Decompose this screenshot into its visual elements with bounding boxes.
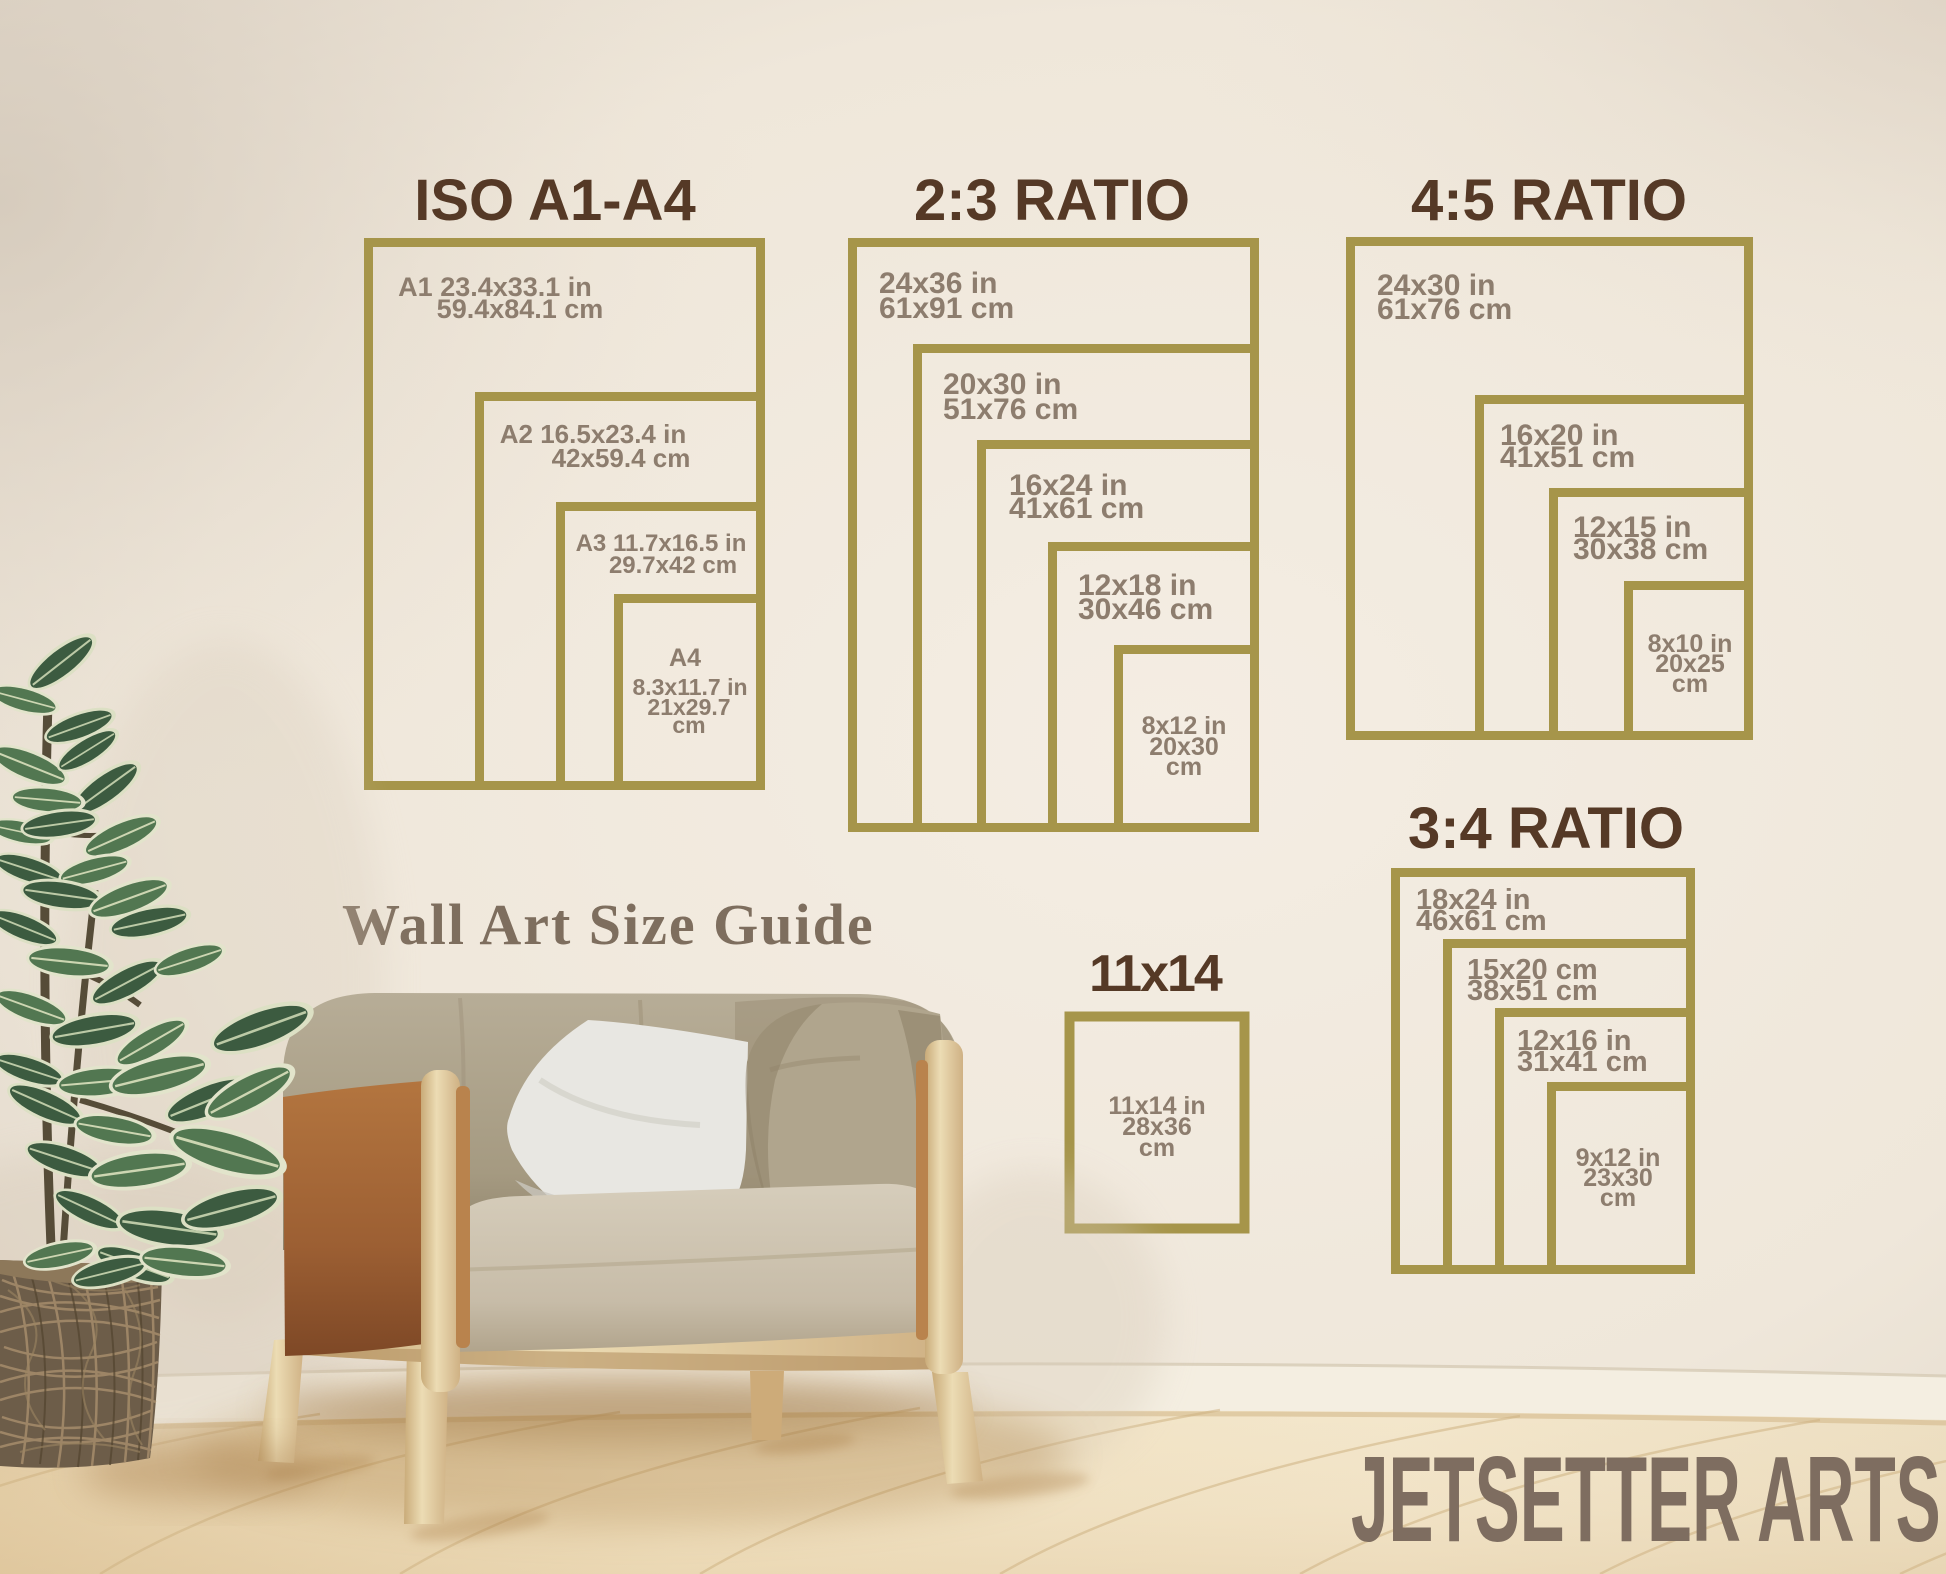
svg-text:61x91 cm: 61x91 cm — [879, 292, 1014, 325]
svg-text:61x76 cm: 61x76 cm — [1377, 293, 1512, 326]
svg-text:41x61 cm: 41x61 cm — [1009, 492, 1144, 525]
svg-text:cm: cm — [1139, 1134, 1175, 1162]
svg-text:4:5 RATIO: 4:5 RATIO — [1411, 168, 1687, 233]
svg-text:51x76 cm: 51x76 cm — [943, 393, 1078, 426]
svg-text:A4: A4 — [669, 644, 701, 672]
svg-text:59.4x84.1 cm: 59.4x84.1 cm — [437, 294, 604, 324]
svg-text:cm: cm — [1600, 1184, 1636, 1212]
svg-text:42x59.4 cm: 42x59.4 cm — [552, 443, 691, 473]
svg-text:Wall Art Size Guide: Wall Art Size Guide — [342, 892, 875, 957]
svg-text:30x38 cm: 30x38 cm — [1573, 533, 1708, 566]
svg-text:11x14: 11x14 — [1089, 945, 1223, 1003]
svg-text:31x41 cm: 31x41 cm — [1517, 1046, 1648, 1078]
svg-text:cm: cm — [672, 712, 705, 738]
svg-text:30x46 cm: 30x46 cm — [1078, 593, 1213, 626]
svg-text:38x51 cm: 38x51 cm — [1467, 975, 1598, 1007]
svg-text:29.7x42 cm: 29.7x42 cm — [609, 552, 737, 579]
svg-text:2:3 RATIO: 2:3 RATIO — [914, 168, 1190, 233]
svg-text:cm: cm — [1672, 670, 1708, 698]
svg-text:cm: cm — [1166, 753, 1202, 781]
svg-text:ISO A1-A4: ISO A1-A4 — [414, 168, 695, 233]
svg-text:3:4 RATIO: 3:4 RATIO — [1408, 796, 1684, 861]
svg-text:46x61 cm: 46x61 cm — [1416, 905, 1547, 937]
svg-text:JETSETTER ARTS: JETSETTER ARTS — [1351, 1431, 1941, 1567]
svg-text:41x51 cm: 41x51 cm — [1500, 441, 1635, 474]
